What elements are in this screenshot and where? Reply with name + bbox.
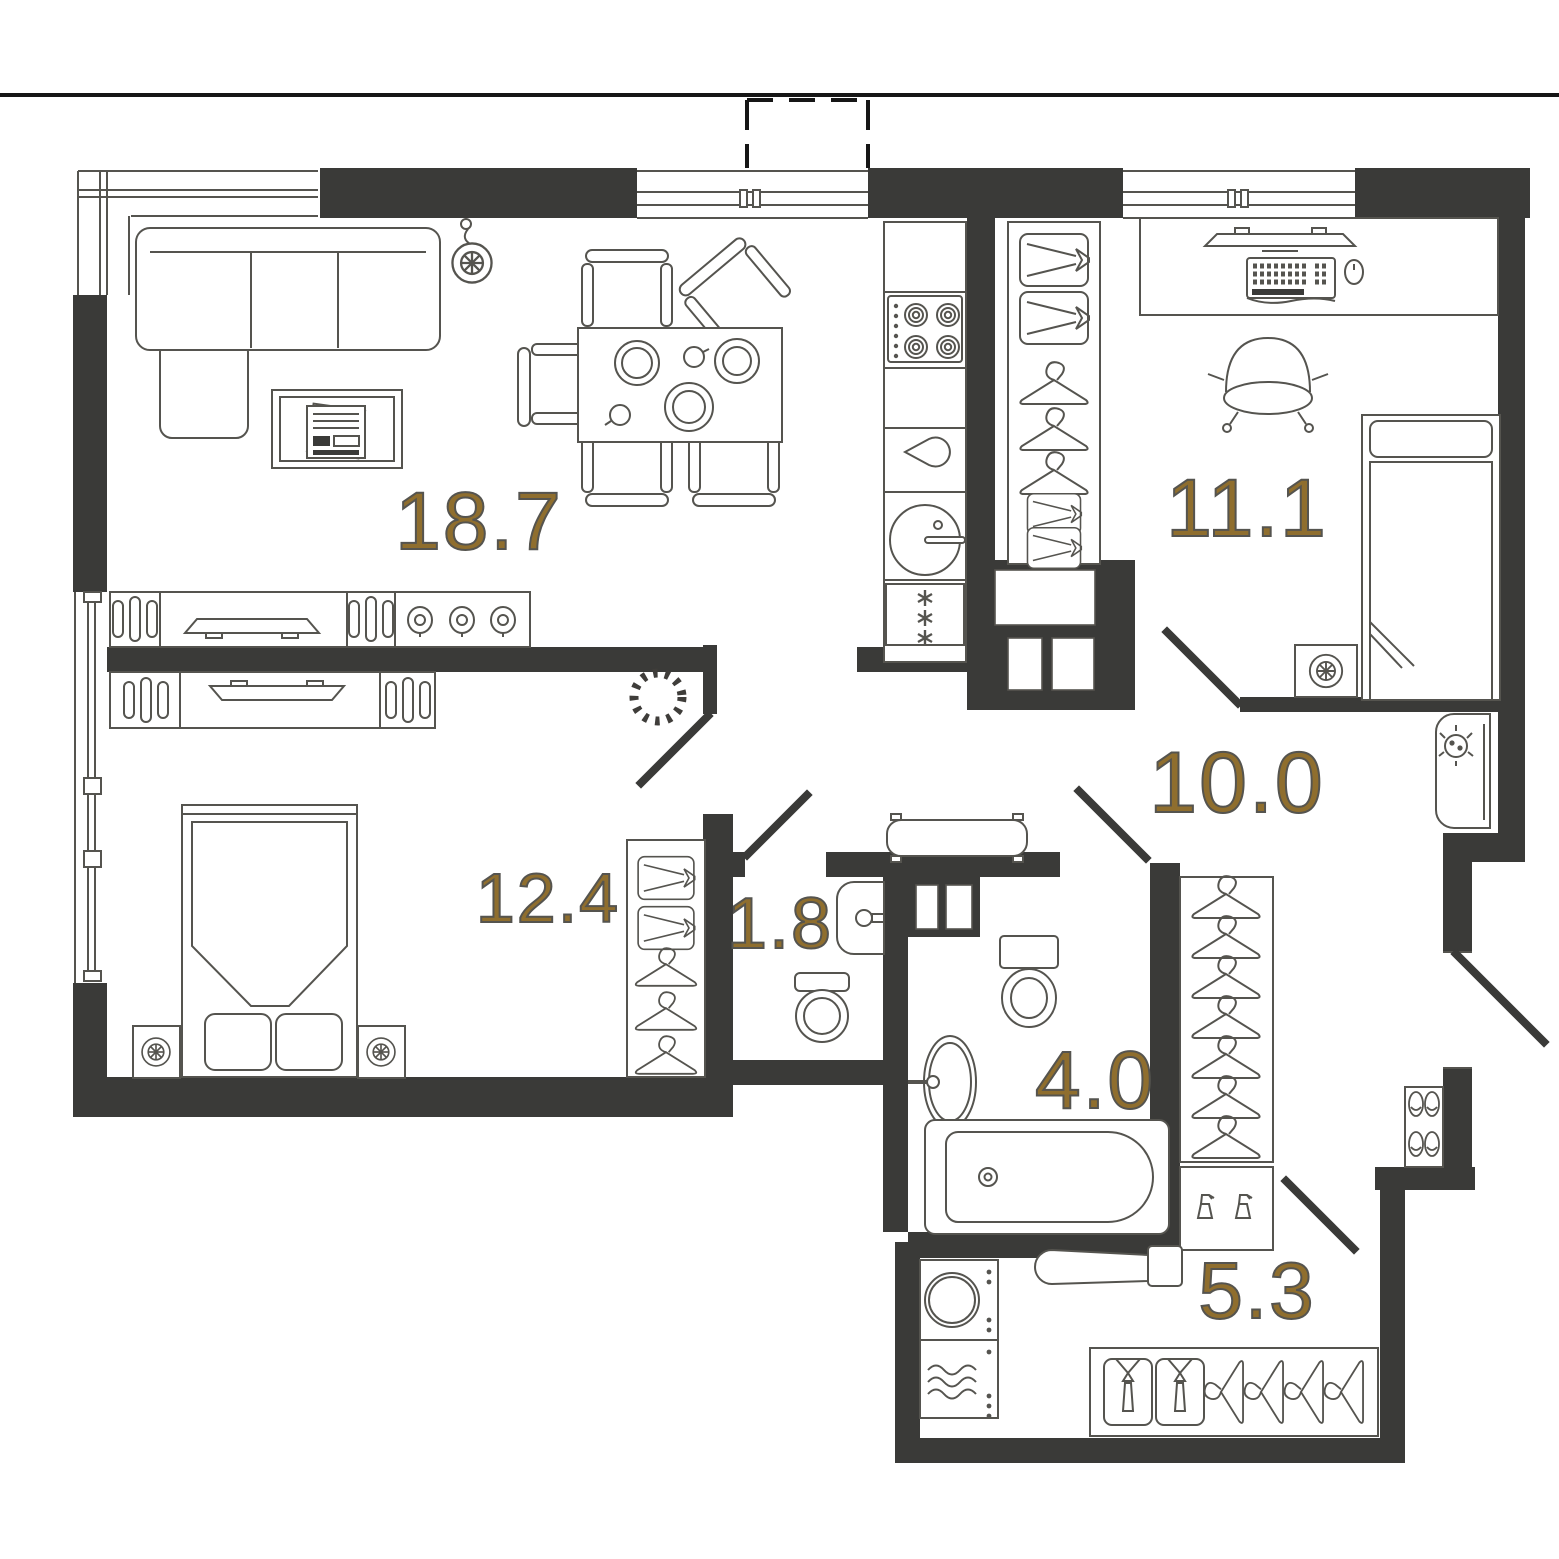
coffee-table-icon	[272, 390, 402, 468]
wall	[895, 1438, 1405, 1463]
keyboard-icon	[1247, 258, 1335, 303]
wash-basin-icon	[837, 882, 884, 954]
door-bedroom-2	[1167, 632, 1238, 703]
single-bed-icon	[1362, 415, 1500, 700]
area-label-bedroom-1: 12.4	[476, 859, 620, 937]
wall	[1498, 218, 1525, 862]
nightstand-icon	[1295, 645, 1357, 697]
office-chair-icon	[1208, 338, 1328, 432]
room-bathroom: 4.0	[908, 936, 1169, 1234]
chair-icon	[582, 250, 672, 326]
door-entrance	[1456, 954, 1544, 1042]
area-label-bedroom-2: 11.1	[1166, 463, 1328, 554]
toilet-icon	[1000, 936, 1058, 1027]
area-label-wc: 1.8	[727, 884, 833, 964]
wreath-decor-icon	[634, 673, 682, 721]
wall	[967, 218, 995, 570]
wall	[1443, 833, 1525, 862]
nightstand-icon	[358, 1026, 405, 1078]
pendant-lamp-icon	[452, 219, 491, 283]
towel-radiator-icon	[887, 814, 1027, 862]
area-label-hallway: 10.0	[1149, 735, 1324, 831]
vanity-mirror-icon	[908, 1036, 976, 1128]
open-wardrobe-icon	[1180, 876, 1273, 1162]
door-bedroom-1	[641, 716, 708, 783]
double-bed-icon	[182, 805, 357, 1077]
desk-icon	[1140, 218, 1498, 315]
cleaning-shelf-icon	[1180, 1167, 1273, 1250]
fridge-icon	[886, 584, 964, 646]
tv-console-icon	[110, 672, 435, 728]
tv-console-icon	[110, 592, 530, 647]
wardrobe-icon	[627, 840, 705, 1077]
room-wc: 1.8	[727, 882, 884, 1042]
chair-icon	[518, 344, 586, 426]
nightstand-icon	[133, 1026, 180, 1078]
wall	[1355, 168, 1530, 218]
balcony-dashed-outline	[747, 100, 868, 168]
area-label-living-kitchen: 18.7	[395, 476, 563, 567]
kitchen-column	[884, 222, 966, 662]
bathtub-icon	[925, 1120, 1169, 1234]
toilet-icon	[795, 973, 849, 1042]
wardrobe-icon	[1008, 222, 1100, 568]
window-top-2	[1123, 171, 1355, 218]
wall	[73, 1077, 733, 1117]
ironing-board-icon	[1035, 1246, 1182, 1286]
wall	[717, 1060, 908, 1085]
mouse-icon	[1345, 260, 1363, 284]
area-label-bathroom: 4.0	[1035, 1035, 1155, 1126]
area-label-laundry: 5.3	[1198, 1246, 1315, 1335]
room-living-kitchen: 18.7	[110, 219, 966, 662]
wall	[883, 852, 908, 1232]
stove-icon	[888, 296, 962, 362]
window-top-1	[637, 171, 868, 218]
dryer-icon	[920, 1340, 998, 1418]
shoe-rack-icon	[1405, 1087, 1443, 1167]
console-table-icon	[1436, 714, 1490, 828]
wall	[1375, 1167, 1475, 1190]
room-bedroom-1: 12.4	[110, 672, 705, 1078]
wall	[107, 647, 717, 672]
dining-table-icon	[518, 233, 792, 506]
wall	[895, 1242, 920, 1463]
door-bathroom	[1079, 791, 1146, 858]
floor-plan-svg: 18.7	[0, 0, 1559, 1559]
chair-icon	[582, 432, 672, 506]
wall	[703, 645, 717, 714]
site-boundary	[0, 95, 1559, 168]
room-laundry: 5.3	[920, 1246, 1378, 1436]
door-laundry	[1286, 1181, 1354, 1249]
wall	[73, 295, 107, 592]
washing-machine-icon	[920, 1260, 998, 1340]
chair-icon	[689, 432, 779, 506]
wall	[1443, 862, 1472, 952]
window-bedroom-left	[75, 592, 101, 983]
wall	[320, 168, 637, 218]
door-wc	[747, 795, 807, 855]
floor-plan-page: 18.7	[0, 0, 1559, 1559]
wall	[1380, 1190, 1405, 1463]
garment-rack-icon	[1090, 1348, 1378, 1436]
wall	[868, 168, 1123, 218]
